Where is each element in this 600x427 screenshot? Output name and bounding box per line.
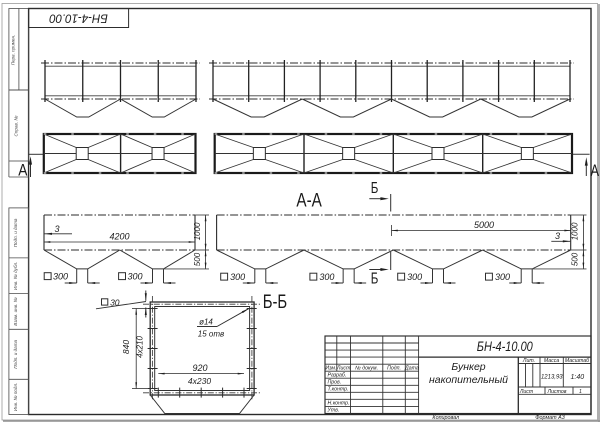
svg-text:3: 3 [54, 224, 59, 234]
svg-text:Изм.: Изм. [325, 366, 336, 372]
svg-text:Н.контр.: Н.контр. [328, 401, 350, 407]
svg-text:Бункер: Бункер [451, 361, 485, 373]
svg-text:1:40: 1:40 [570, 374, 584, 381]
svg-text:920: 920 [192, 363, 207, 373]
svg-text:15 отв: 15 отв [198, 330, 224, 339]
svg-text:500: 500 [193, 252, 202, 266]
svg-text:4х230: 4х230 [188, 376, 211, 386]
svg-text:Т.контр.: Т.контр. [328, 386, 349, 392]
svg-text:300: 300 [319, 272, 334, 282]
svg-text:5000: 5000 [474, 220, 494, 230]
svg-text:Утв.: Утв. [328, 408, 340, 414]
svg-text:А: А [591, 161, 600, 180]
svg-text:Листов: Листов [547, 389, 567, 395]
svg-text:БН-4-10.00: БН-4-10.00 [477, 339, 533, 354]
svg-text:А-А: А-А [296, 189, 322, 211]
svg-text:Взам. инв. №: Взам. инв. № [13, 297, 18, 325]
svg-text:БН-4-10.00: БН-4-10.00 [49, 11, 108, 23]
svg-text:3: 3 [555, 231, 560, 241]
svg-text:1213,93: 1213,93 [541, 375, 563, 381]
svg-text:300: 300 [53, 272, 68, 282]
svg-text:Формат А3: Формат А3 [535, 415, 565, 421]
svg-text:Масштаб: Масштаб [565, 358, 590, 364]
svg-text:1000: 1000 [571, 222, 580, 240]
svg-text:№ докум.: № докум. [355, 366, 378, 372]
svg-text:Пров.: Пров. [328, 379, 342, 385]
svg-text:Б: Б [371, 271, 379, 288]
svg-text:840: 840 [121, 340, 131, 354]
svg-text:4200: 4200 [109, 231, 129, 241]
svg-text:1000: 1000 [193, 222, 202, 240]
svg-text:ø14: ø14 [199, 318, 213, 327]
svg-text:накопительный: накопительный [429, 374, 508, 386]
svg-text:Копировал: Копировал [432, 415, 459, 421]
svg-text:4х210: 4х210 [136, 336, 145, 358]
svg-text:Инв. № дубл.: Инв. № дубл. [13, 262, 18, 290]
svg-text:Разраб.: Разраб. [328, 372, 347, 378]
svg-text:Инв. № подл.: Инв. № подл. [13, 383, 18, 412]
svg-text:Лист: Лист [336, 366, 351, 372]
svg-text:Подп. и дата: Подп. и дата [13, 339, 18, 368]
svg-text:Б: Б [371, 180, 379, 197]
svg-text:Подп.: Подп. [387, 366, 401, 372]
svg-text:Подп. и дата: Подп. и дата [13, 218, 18, 247]
svg-text:Масса: Масса [544, 358, 559, 364]
svg-text:300: 300 [127, 272, 142, 282]
svg-text:Справ. №: Справ. № [14, 116, 19, 137]
svg-text:300: 300 [230, 272, 245, 282]
svg-text:Дата: Дата [404, 366, 419, 372]
svg-text:500: 500 [571, 252, 580, 266]
svg-text:Перв. примен.: Перв. примен. [10, 35, 15, 66]
svg-text:300: 300 [407, 272, 422, 282]
svg-text:1: 1 [579, 389, 582, 395]
svg-text:Лист: Лист [519, 389, 534, 395]
svg-text:Б-Б: Б-Б [263, 291, 288, 313]
svg-text:А: А [18, 161, 28, 180]
svg-text:Лит.: Лит. [522, 358, 535, 364]
svg-text:300: 300 [495, 272, 510, 282]
